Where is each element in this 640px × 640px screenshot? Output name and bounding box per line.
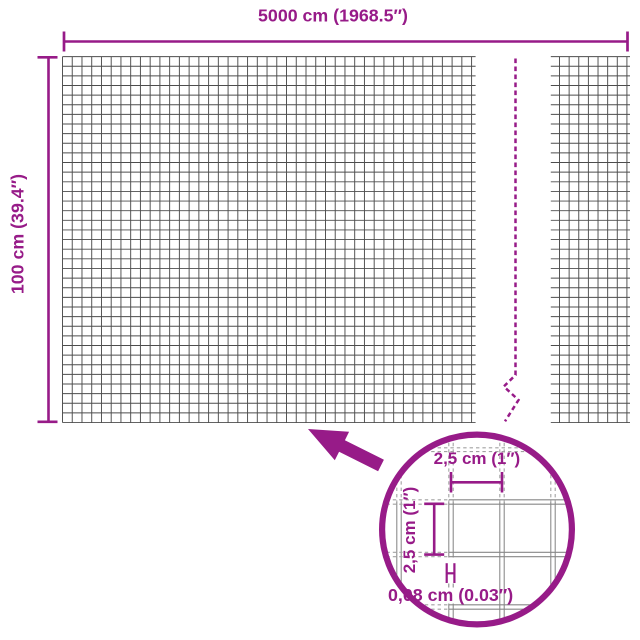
svg-text:2,5 cm (1″): 2,5 cm (1″) bbox=[400, 487, 419, 574]
svg-text:100 cm (39.4″): 100 cm (39.4″) bbox=[7, 174, 27, 294]
svg-text:5000 cm (1968.5″): 5000 cm (1968.5″) bbox=[258, 6, 408, 26]
svg-text:0,08 cm (0.03″): 0,08 cm (0.03″) bbox=[388, 585, 513, 605]
svg-text:2,5 cm (1″): 2,5 cm (1″) bbox=[434, 449, 521, 468]
